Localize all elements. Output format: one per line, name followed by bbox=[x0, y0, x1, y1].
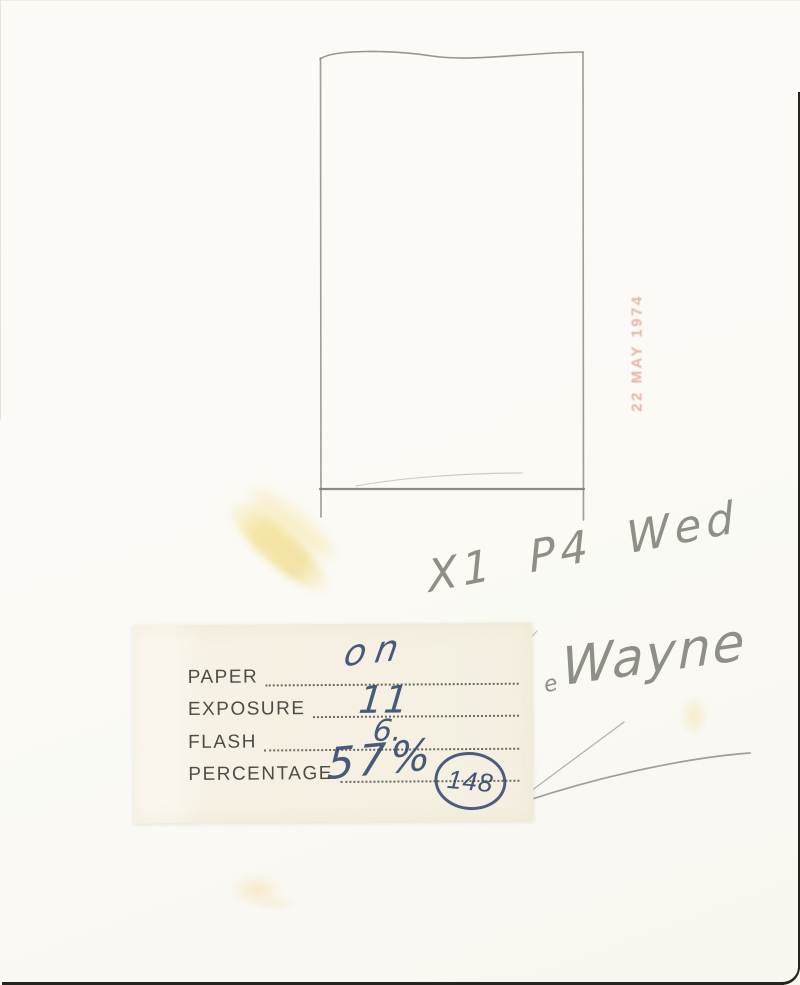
signature-wayne: Wayne bbox=[562, 612, 746, 698]
photo-edge-left bbox=[0, 0, 1, 420]
field-label-paper: PAPER bbox=[188, 666, 266, 689]
field-label-percentage: PERCENTAGE bbox=[188, 763, 340, 786]
ink-circle: 148 bbox=[432, 749, 509, 814]
ink-value-percentage: 57% bbox=[326, 730, 435, 791]
field-label-flash: FLASH bbox=[188, 731, 264, 754]
date-stamp-text: 22 MAY 1974 bbox=[629, 294, 646, 412]
dotted-leader bbox=[313, 715, 519, 718]
circled-number: 148 bbox=[446, 763, 495, 798]
pencil-note: X1 P4 Wed bbox=[426, 492, 741, 603]
signature-mark: e bbox=[541, 671, 560, 699]
photo-corner-rounded bbox=[766, 951, 800, 985]
photo-back: 22 MAY 1974 X1 P4 Wed e Wayne PAPER EXPO… bbox=[0, 0, 800, 985]
pencil-frame-sketch bbox=[0, 0, 800, 985]
ink-value-paper: on bbox=[341, 626, 411, 675]
field-row-exposure: EXPOSURE bbox=[188, 697, 519, 721]
small-yellow-stain bbox=[680, 696, 708, 736]
field-label-exposure: EXPOSURE bbox=[188, 698, 313, 721]
photo-edge-top bbox=[0, 0, 800, 1]
processing-label: PAPER EXPOSURE FLASH PERCENTAGE on 11 6.… bbox=[132, 623, 533, 824]
bottom-stain-tail bbox=[252, 896, 296, 910]
